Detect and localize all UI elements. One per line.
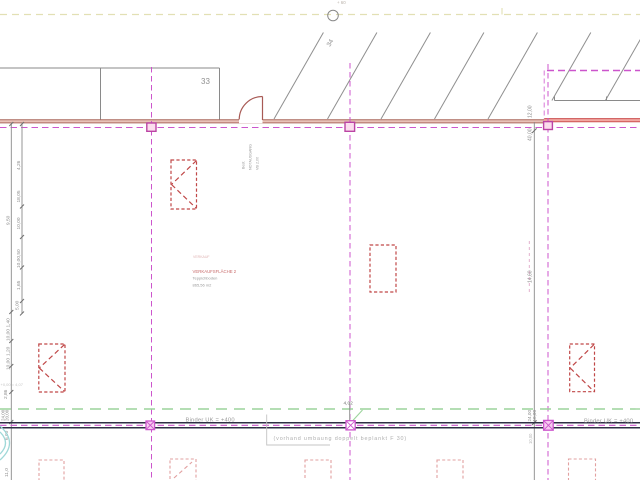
svg-text:5,00: 5,00 [15,300,21,310]
svg-text:VERKAUF: VERKAUF [193,255,210,259]
svg-text:VB 2,00: VB 2,00 [256,157,260,170]
svg-text:18,05: 18,05 [16,190,22,202]
svg-text:Best.: Best. [242,161,246,169]
svg-text:1,65: 1,65 [16,280,22,290]
svg-text:Binder UK = +400: Binder UK = +400 [186,418,235,424]
svg-text:9,50: 9,50 [6,215,12,225]
svg-text:14,60: 14,60 [528,270,534,283]
svg-text:10,00,50: 10,00,50 [16,249,22,268]
svg-text:16,00: 16,00 [532,410,537,422]
svg-text:2,86: 2,86 [3,389,9,399]
svg-text:10,00: 10,00 [6,329,12,341]
svg-text:NOTAUSGANG: NOTAUSGANG [249,144,253,170]
svg-text:(vorhand umbaung doppelt bepla: (vorhand umbaung doppelt beplankt F 30) [274,436,408,442]
svg-text:1,40: 1,40 [6,318,12,328]
svg-text:12,00: 12,00 [528,105,534,118]
svg-text:VERKAUFSFLÄCHE 2: VERKAUFSFLÄCHE 2 [193,269,237,274]
svg-text:4,02: 4,02 [344,401,354,407]
svg-text:Teppichboden: Teppichboden [193,276,218,281]
svg-text:10,00: 10,00 [528,433,533,444]
svg-text:10,00: 10,00 [16,217,22,229]
svg-text:+ 60: + 60 [337,0,346,5]
svg-text:1,20: 1,20 [6,346,12,356]
svg-text:11,0: 11,0 [4,468,10,477]
svg-text:24,00: 24,00 [1,409,6,421]
svg-text:+0,00 = 4,07: +0,00 = 4,07 [1,382,24,387]
svg-text:33: 33 [201,77,210,86]
svg-text:10,00: 10,00 [6,358,12,370]
svg-text:Binder UK = +400: Binder UK = +400 [584,419,633,425]
svg-text:40,00: 40,00 [528,128,534,141]
svg-text:4,26: 4,26 [16,160,22,170]
svg-text:865,56 m2: 865,56 m2 [193,283,213,288]
